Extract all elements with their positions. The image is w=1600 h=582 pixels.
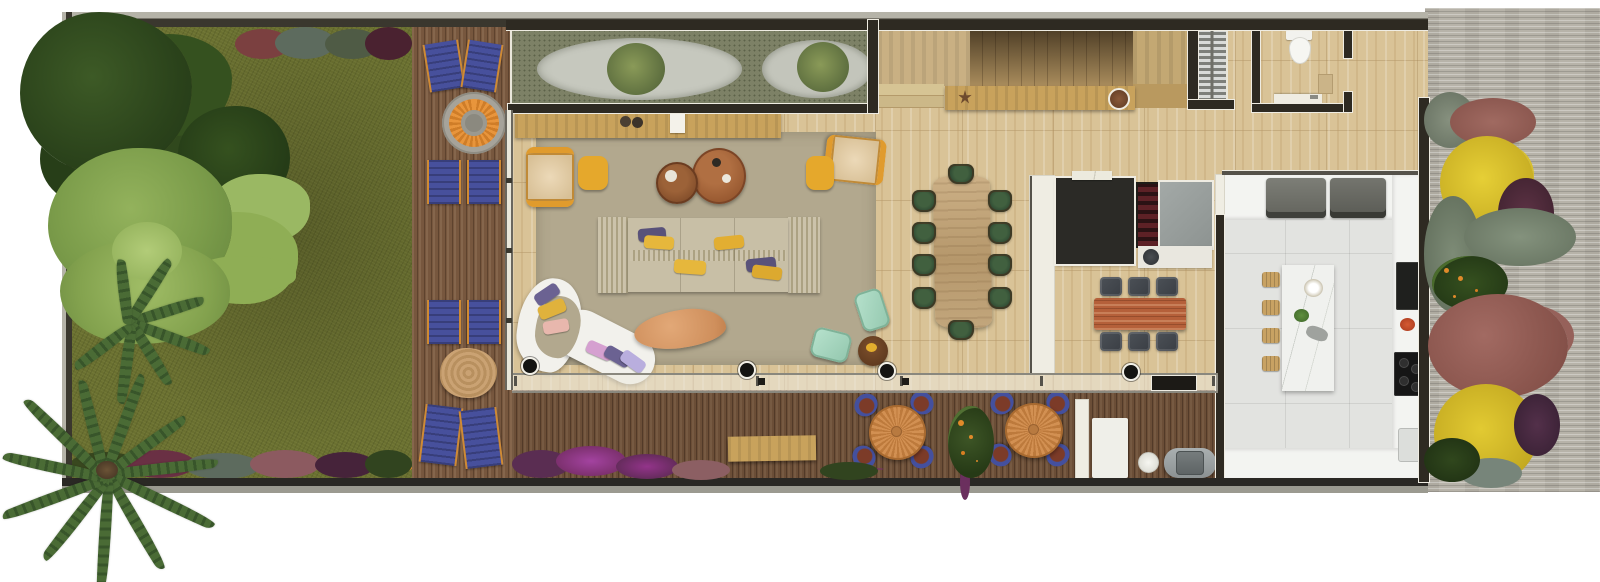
bbq-grill [1164, 448, 1216, 478]
sofa-pillow [644, 235, 675, 250]
island-stool [1262, 356, 1280, 371]
lounge-chair [459, 407, 504, 469]
bar-stool [1100, 277, 1122, 296]
house-wall-top [506, 20, 1428, 31]
groundcover-red-large [1428, 294, 1568, 398]
door-frame [1040, 376, 1043, 386]
decor-vase [712, 158, 721, 167]
deck-chair [427, 300, 461, 344]
bar-stool [1156, 277, 1178, 296]
deck-chair [427, 160, 461, 204]
zen-right-wall [868, 20, 878, 113]
floor-spotlight [1122, 363, 1140, 381]
sideboard [515, 112, 781, 138]
service-wall [1076, 400, 1088, 480]
service-table [1092, 418, 1128, 478]
dining-chair [948, 320, 974, 340]
stair-side-step [1133, 84, 1190, 108]
shrub-magenta [616, 454, 678, 479]
dining-chair [912, 254, 936, 276]
fire-pit-center [461, 110, 487, 136]
pocket-door-frame [1152, 376, 1196, 390]
door-frame [514, 376, 517, 386]
coffee-table-round [656, 162, 698, 204]
built-in-appliance [1266, 178, 1326, 218]
wine-rack [1138, 184, 1158, 246]
lounge-chair [422, 39, 465, 92]
burner [1399, 358, 1409, 368]
stair-step [878, 84, 944, 96]
garden-bench [728, 435, 816, 462]
kitchen-bottom-counter [1222, 448, 1425, 478]
island-cloth [1304, 324, 1329, 344]
boundary-wall-bottom [62, 478, 1428, 493]
sofa-side-panel [788, 217, 820, 293]
shrub-maroon [1514, 394, 1560, 456]
breakfast-table [1094, 298, 1186, 330]
kitchen-island [1282, 265, 1334, 391]
dining-chair [988, 254, 1012, 276]
deck-chair [467, 160, 501, 204]
shrub-mauve [672, 460, 730, 480]
coffee-table-round [692, 148, 746, 204]
stump-side-table [440, 348, 497, 398]
bar-stool [1128, 277, 1150, 296]
zen-divider-wall [508, 104, 876, 113]
dining-table [933, 176, 993, 329]
floor-plan [0, 0, 1600, 582]
zen-plant [607, 43, 665, 95]
dining-chair [948, 164, 974, 184]
stair-side-panel [1133, 28, 1190, 84]
stair-step [878, 96, 944, 108]
decor-cups [620, 116, 631, 127]
shrub-darkgreen [1424, 438, 1480, 482]
interior-wall [1188, 24, 1198, 108]
kitchen-wall-stub [1216, 175, 1224, 217]
shrub [365, 450, 412, 478]
island-stool [1262, 328, 1280, 343]
interior-wall [1188, 100, 1234, 109]
shrub [250, 450, 320, 478]
floor-spotlight [521, 357, 539, 375]
sliding-door-track [512, 373, 1218, 393]
zen-plant [797, 42, 849, 92]
bar-stool [1128, 332, 1150, 351]
dining-chair [912, 287, 936, 309]
dining-chair [988, 287, 1012, 309]
shrub [365, 27, 412, 60]
bar-stool [1156, 332, 1178, 351]
sofa-pillow [674, 259, 707, 275]
decor-bowl [866, 343, 877, 352]
zen-garden [512, 28, 872, 108]
ottoman [806, 156, 834, 190]
island-stool [1262, 300, 1280, 315]
mullion [506, 178, 512, 183]
kitchen-left-wall [1216, 215, 1224, 478]
lounge-chair [419, 404, 464, 466]
stair-landing [878, 28, 970, 86]
living-glass-wall [505, 110, 513, 390]
shrub-dark [820, 462, 878, 480]
floor-spotlight [878, 362, 896, 380]
burner [1399, 376, 1409, 386]
island-plant [1294, 309, 1309, 322]
bar-stool [1100, 332, 1122, 351]
island-stool [1262, 272, 1280, 287]
red-pot [1400, 318, 1415, 331]
sofa-seam [734, 218, 735, 292]
kitchen-hall-seam [1222, 171, 1425, 175]
shrub-magenta [556, 446, 626, 476]
powder-room-wall [1252, 24, 1260, 112]
orange-dots [1444, 268, 1449, 273]
staircase [970, 28, 1133, 86]
stair-bench [945, 86, 1135, 110]
table-center [891, 426, 902, 437]
lounge-chair [460, 39, 503, 92]
bar-counter [1160, 182, 1212, 248]
powder-room-wall [1344, 92, 1352, 112]
mullion [506, 248, 512, 253]
cabinet-marble-shelf [1072, 171, 1112, 180]
dining-chair [988, 190, 1012, 212]
mullion [506, 318, 512, 323]
niche-shelf [1318, 74, 1333, 94]
bar-cabinet [1056, 178, 1134, 264]
dining-chair [988, 222, 1012, 244]
coffee-grinder [1143, 249, 1159, 265]
fire-pit [442, 92, 506, 154]
table-center [1028, 424, 1039, 435]
flower-bed-top [235, 27, 412, 62]
dining-partition [1030, 176, 1054, 373]
decor-tray [665, 170, 677, 182]
deck-chair [467, 300, 501, 344]
floor-spotlight [738, 361, 756, 379]
door-frame [1212, 376, 1215, 386]
round-basin [1138, 452, 1159, 473]
palm-crown [96, 461, 118, 479]
sofa-seam [680, 218, 681, 292]
bush-orange-dots [958, 420, 964, 426]
bbq-lid [1176, 451, 1204, 475]
vanity-faucet [1310, 95, 1318, 99]
house-wall-right [1419, 98, 1429, 482]
dining-chair [912, 190, 936, 212]
vent-grate [1198, 26, 1226, 104]
island-plates [1304, 279, 1323, 297]
armchair [526, 147, 574, 207]
round-tray-decor [1108, 88, 1130, 110]
bush-green [948, 406, 994, 478]
powder-room-wall [1252, 104, 1352, 112]
door-handle [902, 378, 909, 385]
built-in-appliance [1330, 178, 1386, 218]
dining-chair [912, 222, 936, 244]
door-handle [758, 378, 765, 385]
ottoman [578, 156, 608, 190]
decor-box [670, 113, 685, 133]
